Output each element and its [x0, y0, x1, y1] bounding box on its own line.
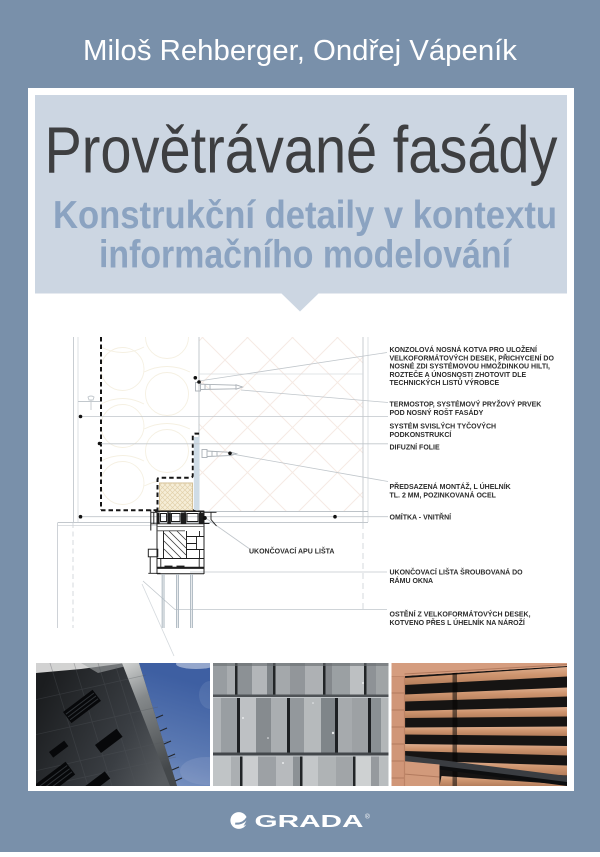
svg-text:®: ®	[365, 813, 370, 821]
svg-text:KOTVENO PŘES L ÚHELNÍK NA NÁRO: KOTVENO PŘES L ÚHELNÍK NA NÁROŽÍ	[390, 618, 526, 627]
svg-text:GRADA: GRADA	[255, 811, 364, 831]
svg-text:NOSNÉ ZDI SYSTÉMOVOU HMOŽDINKO: NOSNÉ ZDI SYSTÉMOVOU HMOŽDINKOU HILTI,	[390, 362, 551, 371]
svg-text:TERMOSTOP, SYSTÉMOVÝ PRYŽOVÝ P: TERMOSTOP, SYSTÉMOVÝ PRYŽOVÝ PRVEK	[390, 400, 542, 409]
svg-text:VELKOFORMÁTOVÝCH DESEK, PŘICHY: VELKOFORMÁTOVÝCH DESEK, PŘICHYCENÍ DO	[390, 353, 555, 362]
svg-text:Provětrávané fasády: Provětrávané fasády	[45, 113, 558, 187]
svg-text:Konstrukční detaily v kontextu: Konstrukční detaily v kontextu	[53, 194, 557, 237]
svg-text:KONZOLOVÁ NOSNÁ KOTVA PRO ULOŽ: KONZOLOVÁ NOSNÁ KOTVA PRO ULOŽENÍ	[390, 345, 538, 354]
svg-text:POD NOSNÝ ROŠT FASÁDY: POD NOSNÝ ROŠT FASÁDY	[390, 408, 484, 417]
svg-text:RÁMU OKNA: RÁMU OKNA	[390, 576, 434, 585]
svg-text:PODKONSTRUKCÍ: PODKONSTRUKCÍ	[390, 430, 453, 439]
svg-text:PŘEDSAZENÁ MONTÁŽ, L ÚHELNÍK: PŘEDSAZENÁ MONTÁŽ, L ÚHELNÍK	[390, 482, 511, 491]
svg-text:SYSTÉM SVISLÝCH TYČOVÝCH: SYSTÉM SVISLÝCH TYČOVÝCH	[390, 422, 497, 431]
svg-text:UKONČOVACÍ LIŠTA ŠROUBOVANÁ DO: UKONČOVACÍ LIŠTA ŠROUBOVANÁ DO	[390, 568, 524, 577]
svg-text:OSTĚNÍ Z VELKOFORMÁTOVÝCH DESE: OSTĚNÍ Z VELKOFORMÁTOVÝCH DESEK,	[390, 610, 531, 619]
svg-text:TL. 2 MM, POZINKOVANÁ OCEL: TL. 2 MM, POZINKOVANÁ OCEL	[390, 490, 497, 499]
svg-text:UKONČOVACÍ APU LIŠTA: UKONČOVACÍ APU LIŠTA	[249, 547, 334, 556]
svg-text:OMÍTKA - VNITŘNÍ: OMÍTKA - VNITŘNÍ	[390, 513, 453, 522]
svg-text:DIFUZNÍ FOLIE: DIFUZNÍ FOLIE	[390, 443, 440, 452]
svg-text:informačního modelování: informačního modelování	[99, 234, 512, 277]
svg-text:Miloš Rehberger, Ondřej Vápení: Miloš Rehberger, Ondřej Vápeník	[83, 35, 517, 67]
svg-text:ROZTEČE A ÚNOSNOSTI ZHOTOVIT D: ROZTEČE A ÚNOSNOSTI ZHOTOVIT DLE	[390, 370, 527, 379]
